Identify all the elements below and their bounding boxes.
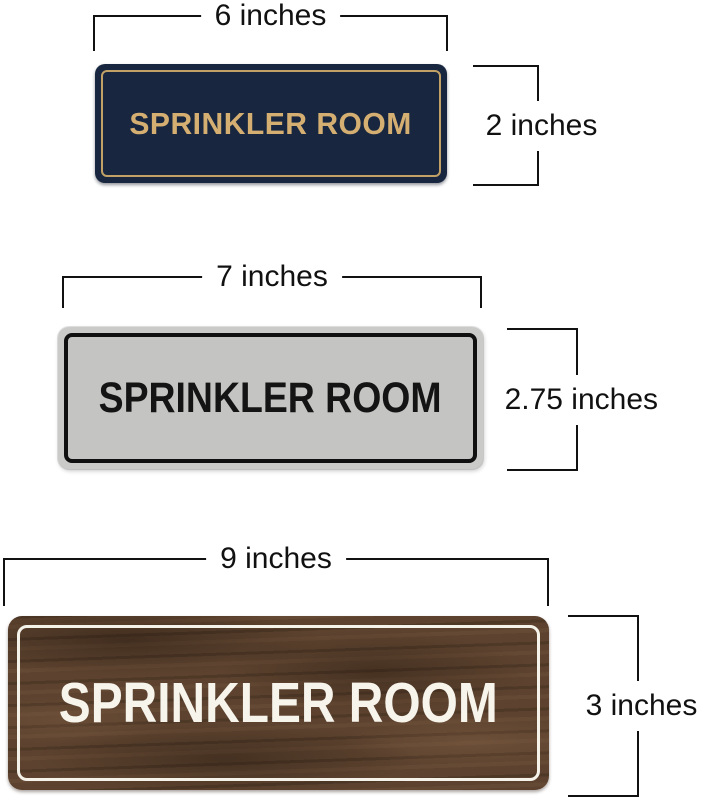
product-dimension-diagram: 6 inches SPRINKLER ROOM 2 inches 7 inche… — [0, 0, 722, 805]
dimension-tick-left — [93, 15, 95, 51]
sign-text: SPRINKLER ROOM — [130, 106, 412, 142]
width-dimension-label: 9 inches — [206, 542, 346, 576]
height-dimension-label: 3 inches — [580, 681, 704, 731]
height-dimension-label: 2 inches — [480, 101, 604, 151]
dimension-tick-left — [62, 276, 64, 308]
width-dimension-label: 7 inches — [202, 260, 342, 294]
height-dimension-label: 2.75 inches — [499, 375, 664, 425]
width-dimension-bracket-silver: 7 inches — [62, 276, 482, 308]
sign-text: SPRINKLER ROOM — [59, 670, 498, 736]
width-dimension-bracket-navy: 6 inches — [93, 15, 448, 51]
sign-border-ring: SPRINKLER ROOM — [64, 333, 477, 463]
dimension-tick-right — [547, 558, 549, 606]
sign-navy: SPRINKLER ROOM — [95, 64, 447, 183]
sign-wood: SPRINKLER ROOM — [8, 616, 549, 790]
dimension-tick-right — [446, 15, 448, 51]
width-dimension-bracket-wood: 9 inches — [3, 558, 549, 606]
width-dimension-label: 6 inches — [201, 0, 341, 33]
height-dimension-bracket-silver: 2.75 inches — [507, 328, 578, 471]
dimension-tick-right — [480, 276, 482, 308]
height-dimension-bracket-wood: 3 inches — [568, 615, 639, 797]
sign-text: SPRINKLER ROOM — [99, 374, 442, 423]
height-dimension-bracket-navy: 2 inches — [473, 65, 539, 186]
sign-silver: SPRINKLER ROOM — [58, 327, 483, 469]
dimension-tick-left — [3, 558, 5, 606]
